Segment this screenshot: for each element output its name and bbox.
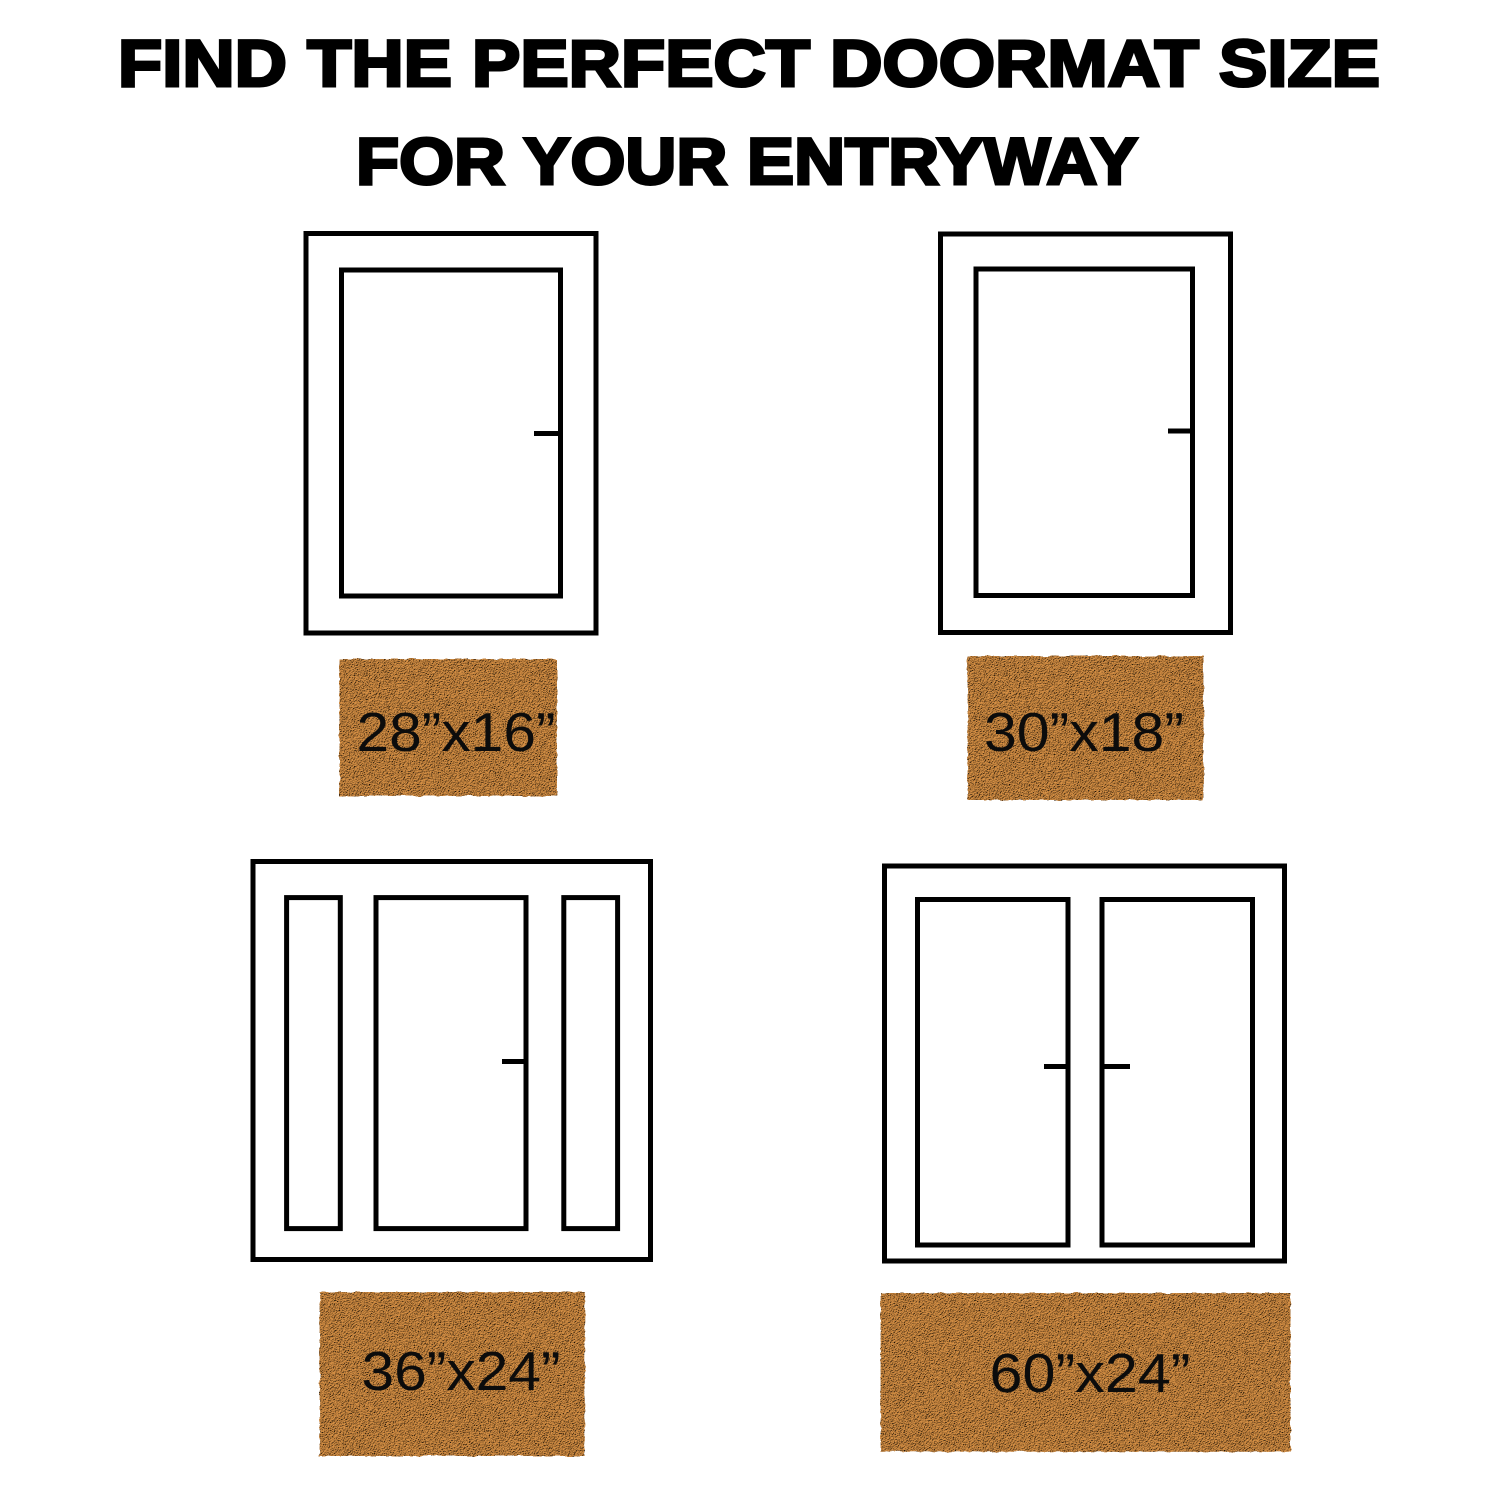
svg-text:FOR YOUR ENTRYWAY: FOR YOUR ENTRYWAY bbox=[356, 124, 1138, 198]
svg-text:FIND THE PERFECT DOORMAT SIZE: FIND THE PERFECT DOORMAT SIZE bbox=[118, 26, 1380, 100]
svg-text:60”x24”: 60”x24” bbox=[990, 1342, 1191, 1404]
svg-text:36”x24”: 36”x24” bbox=[362, 1340, 561, 1402]
svg-text:30”x18”: 30”x18” bbox=[984, 701, 1184, 763]
svg-text:28”x16”: 28”x16” bbox=[357, 701, 556, 763]
